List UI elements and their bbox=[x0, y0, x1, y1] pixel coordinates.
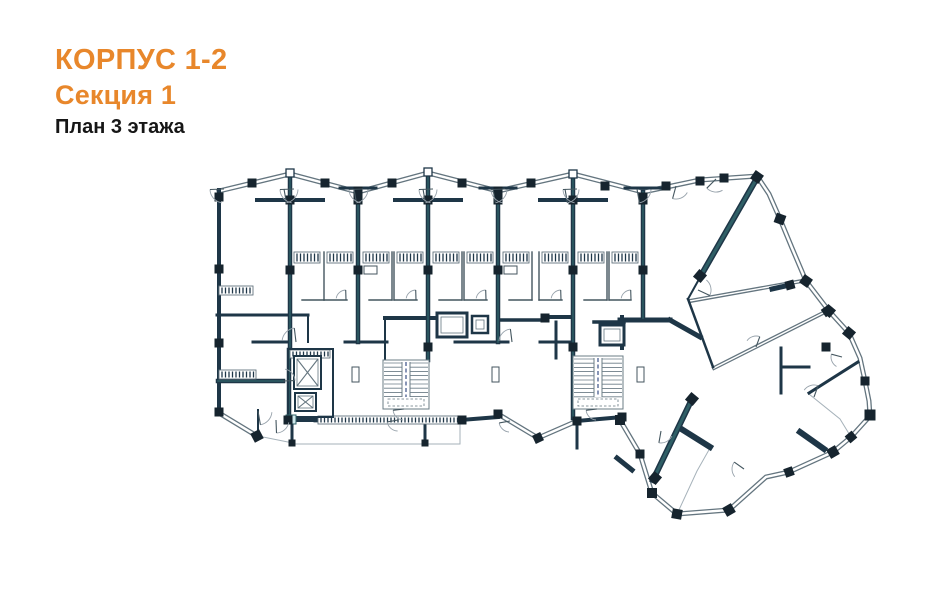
wall bbox=[461, 417, 498, 420]
door-leaf bbox=[294, 328, 296, 342]
wall-teal-core bbox=[703, 178, 757, 272]
radiator bbox=[364, 266, 377, 274]
radiator bbox=[637, 367, 644, 382]
wall bbox=[617, 458, 632, 470]
door-leaf bbox=[510, 329, 512, 342]
column bbox=[458, 179, 467, 188]
column bbox=[494, 266, 503, 275]
door-leaf bbox=[419, 189, 433, 190]
window-band bbox=[652, 452, 833, 514]
wall bbox=[683, 430, 710, 447]
column bbox=[284, 416, 293, 425]
door-arc bbox=[476, 290, 486, 298]
door-arc bbox=[732, 462, 735, 477]
column bbox=[388, 179, 397, 188]
column bbox=[647, 488, 657, 498]
wall bbox=[809, 362, 858, 393]
door-leaf bbox=[659, 431, 661, 443]
radiator bbox=[492, 367, 499, 382]
wall bbox=[800, 432, 824, 449]
column bbox=[639, 266, 648, 275]
column bbox=[354, 266, 363, 275]
white-pier bbox=[286, 169, 294, 177]
column bbox=[720, 174, 729, 183]
column bbox=[424, 266, 433, 275]
column bbox=[286, 266, 295, 275]
column bbox=[422, 440, 429, 447]
white-pier bbox=[424, 168, 432, 176]
window-band-core bbox=[757, 176, 870, 416]
door-leaf bbox=[210, 189, 224, 190]
column bbox=[671, 508, 683, 520]
door-leaf bbox=[563, 189, 577, 190]
balcony-outline bbox=[809, 394, 851, 437]
column bbox=[527, 179, 536, 188]
column bbox=[215, 408, 224, 417]
door-arc bbox=[336, 290, 346, 298]
door-arc bbox=[707, 188, 723, 192]
window-band-core bbox=[219, 413, 257, 436]
window-band-core bbox=[652, 452, 833, 514]
column bbox=[601, 182, 610, 191]
door-arc bbox=[747, 336, 760, 341]
window-band bbox=[757, 176, 870, 416]
door-leaf bbox=[491, 189, 505, 190]
column bbox=[822, 343, 831, 352]
column bbox=[215, 339, 224, 348]
column bbox=[861, 377, 870, 386]
window-band-core bbox=[714, 311, 827, 368]
wall-teal-core bbox=[653, 399, 692, 480]
door-arc bbox=[499, 329, 510, 341]
door-leaf bbox=[349, 189, 363, 190]
column bbox=[494, 410, 503, 419]
balcony-outline bbox=[678, 448, 710, 512]
door-leaf bbox=[276, 420, 277, 433]
column bbox=[215, 265, 224, 274]
door-arc bbox=[551, 290, 561, 298]
door-arc bbox=[499, 423, 509, 432]
column bbox=[662, 182, 671, 191]
column bbox=[573, 417, 582, 426]
column bbox=[636, 450, 645, 459]
door-arc bbox=[706, 280, 711, 296]
door-arc bbox=[831, 354, 836, 366]
door-leaf bbox=[734, 462, 744, 469]
column bbox=[494, 187, 503, 196]
door-arc bbox=[621, 290, 631, 298]
column bbox=[696, 177, 705, 186]
column bbox=[865, 410, 876, 421]
radiator bbox=[504, 266, 517, 274]
page: КОРПУС 1-2 Секция 1 План 3 этажа bbox=[0, 0, 941, 600]
column bbox=[458, 416, 467, 425]
vent-shaft bbox=[472, 316, 488, 333]
column bbox=[321, 179, 330, 188]
column bbox=[289, 440, 296, 447]
door-arc bbox=[406, 290, 416, 298]
column bbox=[618, 413, 627, 422]
door-leaf bbox=[831, 354, 842, 357]
column bbox=[569, 343, 578, 352]
column bbox=[569, 266, 578, 275]
door-leaf bbox=[698, 290, 710, 296]
radiator bbox=[352, 367, 359, 382]
door-arc bbox=[260, 412, 272, 425]
door-leaf bbox=[280, 189, 294, 190]
column bbox=[424, 343, 433, 352]
door-arc bbox=[673, 193, 688, 200]
floor-plan-svg bbox=[0, 0, 941, 600]
column bbox=[541, 314, 550, 323]
white-pier bbox=[569, 170, 577, 178]
column bbox=[248, 179, 257, 188]
vent-shaft bbox=[600, 325, 624, 345]
